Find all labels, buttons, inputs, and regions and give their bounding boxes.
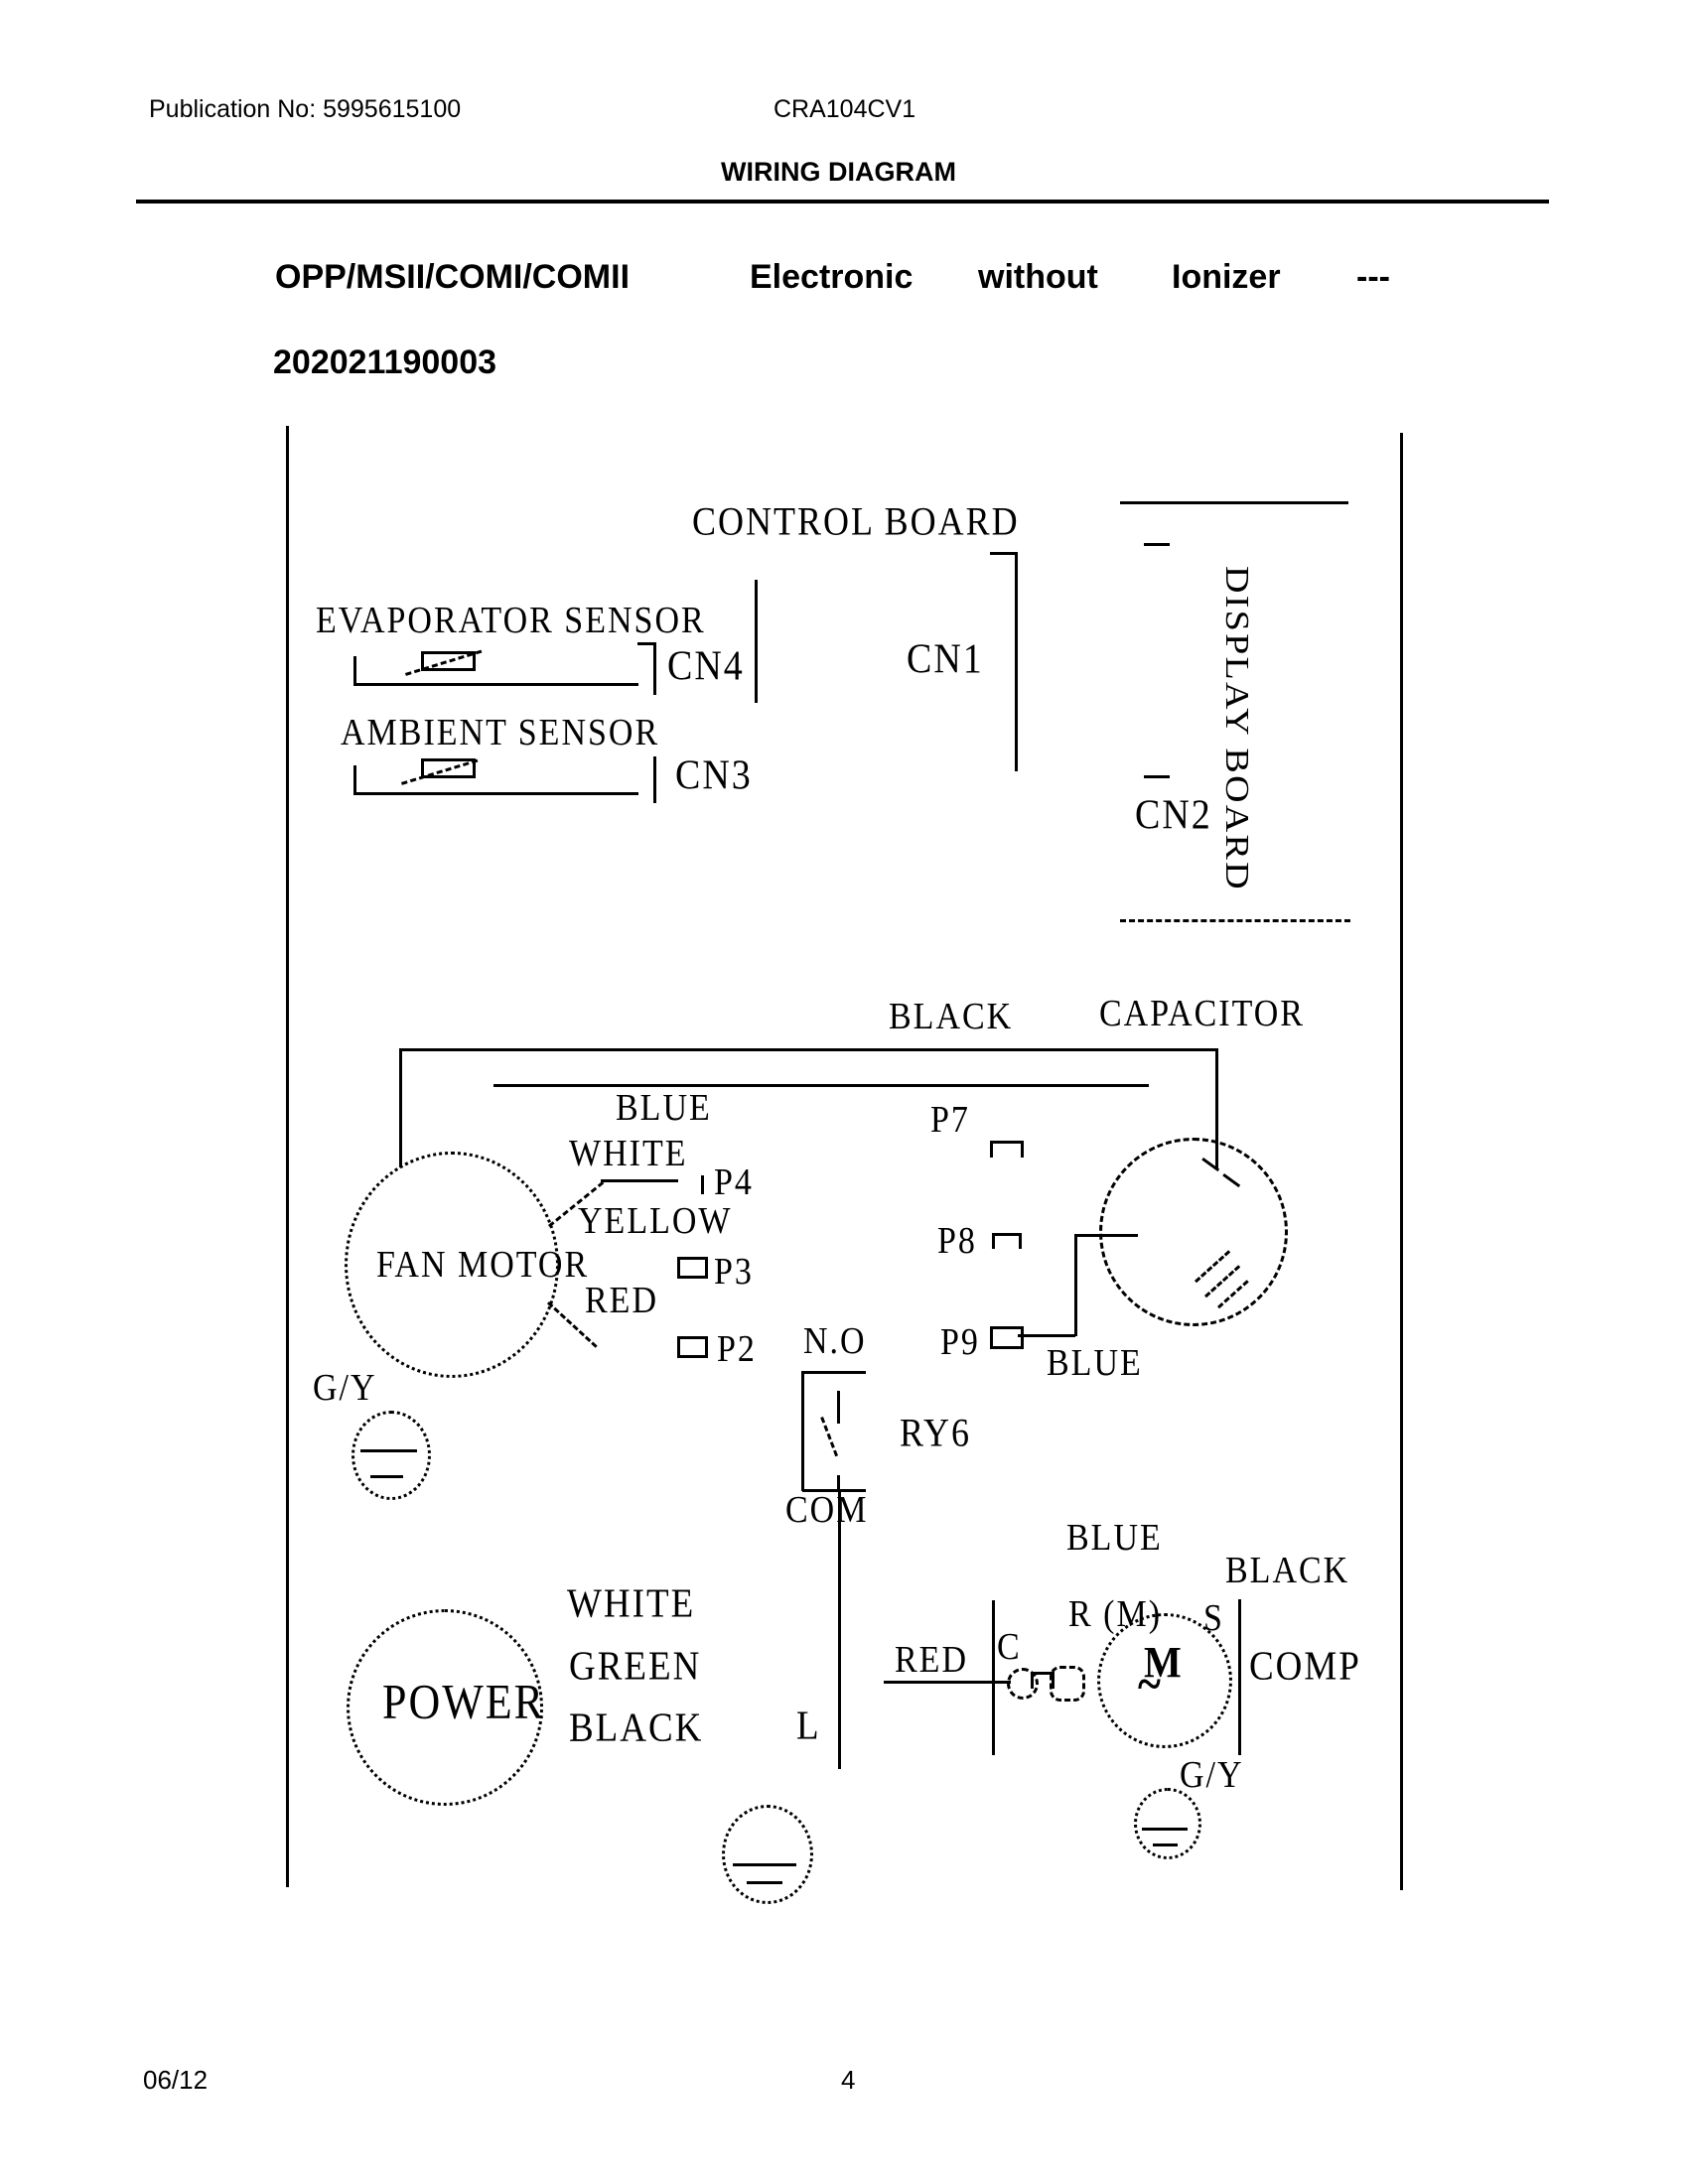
pin-p2-symbol <box>677 1336 708 1358</box>
wire-label-red-compressor: RED <box>895 1642 968 1680</box>
wire-black-drop-fan <box>399 1048 402 1167</box>
relay-top-line <box>802 1371 866 1374</box>
diagram-left-border <box>286 426 289 1887</box>
wire-label-white-fan: WHITE <box>569 1136 688 1173</box>
overload-protector-right <box>1050 1666 1085 1702</box>
relay-left-line <box>801 1371 804 1491</box>
cn1-bracket-top <box>990 552 1017 555</box>
relay-contact-fixed <box>837 1391 840 1424</box>
fan-ground-circle <box>352 1411 431 1500</box>
publication-number: Publication No: 5995615100 <box>149 97 461 122</box>
subtitle-word-ionizer: Ionizer <box>1172 260 1281 294</box>
connector-cn1: CN1 <box>907 638 984 681</box>
terminal-common-line <box>992 1600 995 1755</box>
subtitle-word-electronic: Electronic <box>750 260 913 294</box>
fan-ground-bar-long <box>360 1449 417 1452</box>
terminal-common-label: C <box>997 1629 1022 1667</box>
display-board-tick-cn2 <box>1144 775 1170 778</box>
display-board-tick-top <box>1144 543 1170 546</box>
wire-blue-horizontal <box>493 1084 1149 1087</box>
ground-label-compressor: G/Y <box>1180 1757 1244 1795</box>
wire-label-black-compressor: BLACK <box>1225 1553 1349 1590</box>
wire-label-black-power: BLACK <box>569 1707 703 1748</box>
wire-p9-to-capacitor <box>1074 1234 1138 1237</box>
model-number: CRA104CV1 <box>774 97 915 122</box>
relay-name-label: RY6 <box>900 1413 971 1452</box>
wire-label-blue-top: BLUE <box>616 1090 712 1128</box>
wiring-diagram-page: Publication No: 5995615100 CRA104CV1 WIR… <box>0 0 1688 2184</box>
wire-black-horizontal <box>400 1048 1218 1051</box>
compressor-motor-wave-icon: ~ <box>1138 1660 1163 1708</box>
display-board-label: DISPLAY BOARD <box>1219 566 1253 872</box>
ambient-lead-down <box>353 765 356 794</box>
wire-red-horizontal <box>884 1681 1011 1684</box>
evaporator-lead-wire <box>353 683 638 686</box>
pin-p4-label: P4 <box>714 1164 754 1202</box>
pin-p8-symbol <box>992 1233 1022 1249</box>
wire-p9-horizontal <box>1018 1334 1075 1337</box>
cn1-bracket-side <box>1015 552 1018 771</box>
wire-label-red-fan: RED <box>585 1283 658 1320</box>
footer-page-number: 4 <box>841 2067 855 2093</box>
wire-label-blue-compressor: BLUE <box>1066 1520 1163 1558</box>
capacitor-label: CAPACITOR <box>1099 996 1305 1033</box>
pin-p2-label: P2 <box>717 1331 757 1369</box>
wire-label-green-power: GREEN <box>569 1646 701 1687</box>
line-ground-bar-short <box>747 1881 782 1884</box>
wire-label-white-power: WHITE <box>567 1583 695 1624</box>
wire-white-underline <box>601 1179 678 1182</box>
evaporator-sensor-label: EVAPORATOR SENSOR <box>316 603 706 640</box>
power-label: POWER <box>382 1678 545 1726</box>
connector-cn4: CN4 <box>667 645 745 688</box>
subtitle-code: 202021190003 <box>273 345 496 379</box>
connector-cn2: CN2 <box>1135 794 1212 837</box>
control-board-edge <box>755 580 758 703</box>
subtitle-dashes: --- <box>1356 260 1390 294</box>
wire-label-blue-capacitor: BLUE <box>1047 1345 1143 1383</box>
pin-p9-symbol <box>990 1326 1024 1349</box>
fan-motor-label: FAN MOTOR <box>376 1247 589 1285</box>
compressor-ground-circle <box>1134 1788 1201 1859</box>
compressor-ground-bar-long <box>1142 1828 1188 1831</box>
wire-p9-vertical <box>1074 1235 1077 1336</box>
relay-com-label: COM <box>785 1492 868 1530</box>
subtitle-word-without: without <box>978 260 1098 294</box>
line-ground-circle <box>722 1805 813 1904</box>
evaporator-lead-down <box>353 656 356 685</box>
relay-no-label: N.O <box>803 1323 867 1361</box>
ambient-lead-wire <box>353 792 638 795</box>
cn4-bracket-side <box>653 642 656 695</box>
fan-ground-bar-short <box>370 1475 403 1478</box>
pin-p9-label: P9 <box>940 1324 980 1362</box>
wire-line-main <box>838 1489 841 1769</box>
pin-p7-label: P7 <box>930 1102 970 1140</box>
display-board-top <box>1120 501 1348 504</box>
diagram-right-border <box>1400 433 1403 1890</box>
pin-p8-label: P8 <box>937 1223 977 1261</box>
page-title: WIRING DIAGRAM <box>721 159 956 186</box>
connector-cn3: CN3 <box>675 754 753 797</box>
compressor-ground-bar-short <box>1153 1843 1178 1846</box>
pin-p3-label: P3 <box>714 1254 754 1292</box>
control-board-label: CONTROL BOARD <box>692 501 1020 541</box>
pin-p4-tick <box>701 1175 704 1194</box>
ambient-sensor-label: AMBIENT SENSOR <box>341 715 659 752</box>
display-board-bottom-dashed <box>1120 919 1350 922</box>
pin-p7-symbol <box>990 1141 1024 1158</box>
capacitor-circle <box>1099 1138 1288 1326</box>
footer-revision: 06/12 <box>143 2067 208 2093</box>
line-ground-bar-long <box>733 1863 796 1866</box>
wire-label-black-top: BLACK <box>889 999 1013 1036</box>
header-rule <box>136 200 1549 204</box>
ground-label-fan: G/Y <box>313 1370 377 1408</box>
subtitle-family: OPP/MSII/COMI/COMII <box>275 260 630 294</box>
wire-label-yellow: YELLOW <box>578 1203 733 1241</box>
line-terminal-label: L <box>796 1706 821 1746</box>
terminal-start-line <box>1238 1599 1241 1755</box>
pin-p3-symbol <box>677 1257 708 1279</box>
relay-contact-moving <box>820 1417 838 1456</box>
cn3-bracket-side <box>653 756 656 803</box>
compressor-label: COMP <box>1249 1646 1361 1687</box>
